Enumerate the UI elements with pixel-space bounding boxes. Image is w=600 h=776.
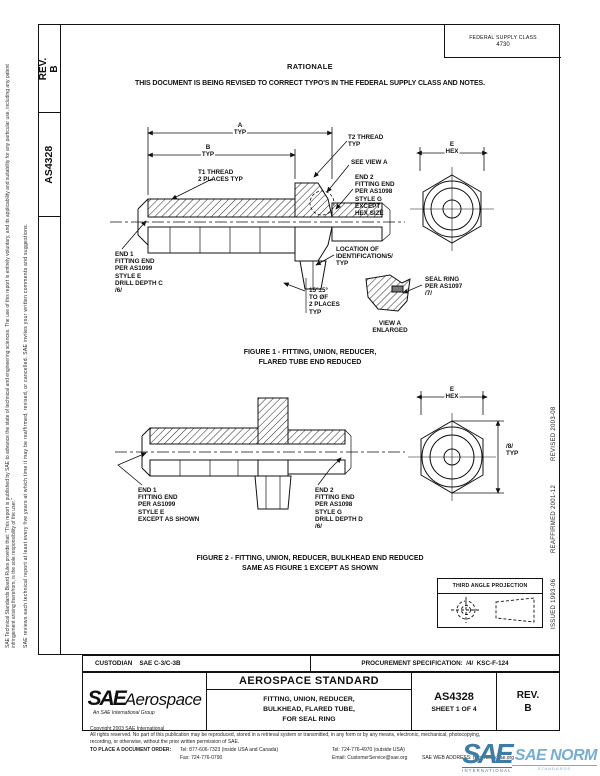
figure2-caption: FIGURE 2 - FITTING, UNION, REDUCER, BULK…: [60, 554, 560, 574]
watermark-sae-text: SAE: [462, 742, 512, 766]
order-label: TO PLACE A DOCUMENT ORDER:: [90, 747, 171, 753]
fig1-dim-b-label: B TYP: [201, 144, 215, 158]
rationale-text: THIS DOCUMENT IS BEING REVISED TO CORREC…: [60, 80, 560, 87]
sae-logo-subtext: An SAE International Group: [83, 710, 155, 716]
watermark-international-text: INTERNATIONAL: [462, 767, 512, 773]
fig1-t2-thread-label: T2 THREAD TYP: [348, 134, 383, 148]
document-title: FITTING, UNION, REDUCER, BULKHEAD, FLARE…: [207, 690, 411, 730]
fig2-leader-lines: [118, 453, 341, 485]
rev-value: B: [524, 703, 531, 714]
standard-type-label: AEROSPACE STANDARD: [207, 673, 411, 690]
aerospace-logo-text: Aerospace: [125, 690, 202, 709]
tel-outside: Tel: 724-776-4970 (outside USA): [332, 747, 405, 753]
fsc-value: 4730: [496, 42, 509, 48]
rev-side-label: REV. B: [39, 57, 61, 79]
fig1-e-hex-label: E HEX: [445, 141, 460, 155]
title-block-middle: AEROSPACE STANDARD FITTING, UNION, REDUC…: [207, 673, 412, 730]
figure1: A TYP B TYP T1 THREAD 2 PLACES TYP T2 TH…: [60, 113, 560, 348]
fig2-end2-label: END 2 FITTING END PER AS1098 STYLE G DRI…: [315, 487, 363, 530]
fig1-t1-thread-label: T1 THREAD 2 PLACES TYP: [198, 169, 243, 183]
fax-number: Fax: 724-776-0790: [180, 755, 222, 761]
fig1-view-a-caption: VIEW A ENLARGED: [372, 320, 407, 334]
rationale-title: RATIONALE: [60, 62, 560, 71]
third-angle-projection-label: THIRD ANGLE PROJECTION: [438, 579, 542, 594]
fig2-end1-label: END 1 FITTING END PER AS1099 STYLE E EXC…: [138, 487, 199, 523]
fig1-end2-label: END 2 FITTING END PER AS1098 STYLE G EXC…: [355, 174, 395, 217]
fig1-seal-ring-label: SEAL RING PER AS1097 /7/: [425, 276, 462, 298]
watermark-standards-text: STANDARDS: [512, 765, 597, 771]
title-block-number: AS4328 SHEET 1 OF 4: [412, 673, 497, 730]
figure2-drawing: [60, 385, 560, 553]
title-block-rev: REV. B: [497, 673, 559, 730]
sae-logo-text: SAE: [88, 687, 125, 710]
third-angle-projection-box: THIRD ANGLE PROJECTION: [437, 578, 543, 628]
rev-side-box: REV. B: [39, 25, 60, 113]
procurement-spec-cell: PROCUREMENT SPECIFICATION: /4/ KSC-F-124: [311, 656, 559, 671]
sae-norm-watermark: SAE INTERNATIONAL SAE NORM STANDARDS: [462, 742, 597, 773]
fig1-hex-end-view: [410, 167, 494, 251]
rev-label: REV.: [517, 690, 539, 701]
email-address: Email: CustomerService@sae.org: [332, 755, 407, 761]
custodian-cell: CUSTODIAN SAE C-3/C-3B: [83, 656, 311, 671]
fig1-see-view-a-label: SEE VIEW A: [351, 159, 388, 166]
doc-number-side-label: AS4328: [44, 146, 56, 184]
third-angle-projection-symbol: [438, 594, 541, 626]
sheet-number: SHEET 1 OF 4: [431, 706, 476, 713]
fig1-angle-label: 15°±5° TO ØF 2 PLACES TYP: [309, 287, 340, 316]
figure1-caption: FIGURE 1 - FITTING, UNION, REDUCER, FLAR…: [60, 348, 560, 368]
fig1-view-a-detail: [366, 275, 410, 311]
fig1-location-id-label: LOCATION OF IDENTIFICATION/5/ TYP: [336, 246, 393, 268]
tel-inside: Tel: 877-606-7323 (inside USA and Canada…: [180, 747, 278, 753]
info-row: CUSTODIAN SAE C-3/C-3B PROCUREMENT SPECI…: [82, 655, 560, 672]
fig2-e-hex-label: E HEX: [445, 386, 460, 400]
federal-supply-class-box: FEDERAL SUPPLY CLASS 4730: [444, 25, 561, 58]
sae-aerospace-logo: SAEAerospace An SAE International Group: [83, 673, 207, 730]
left-margin-review-note: SAE reviews each technical report at lea…: [23, 223, 29, 648]
fig2-dim8-label: /8/ TYP: [506, 443, 518, 457]
fig1-dim-a-label: A TYP: [233, 122, 247, 136]
doc-number-side-box: AS4328: [39, 113, 60, 217]
document-number: AS4328: [434, 691, 474, 703]
watermark-norm-text: SAE NORM: [515, 749, 597, 763]
fsc-label: FEDERAL SUPPLY CLASS: [469, 35, 537, 41]
figure2: E HEX /8/ TYP END 1 FITTING END PER AS10…: [60, 385, 560, 553]
fig1-end1-label: END 1 FITTING END PER AS1099 STYLE E DRI…: [115, 251, 163, 294]
left-margin-disclaimer: SAE Technical Standards Board Rules prov…: [5, 36, 18, 648]
title-block: SAEAerospace An SAE International Group …: [82, 672, 560, 731]
fig2-hex-end-view: [408, 413, 496, 501]
left-side-column: REV. B AS4328: [39, 25, 61, 654]
